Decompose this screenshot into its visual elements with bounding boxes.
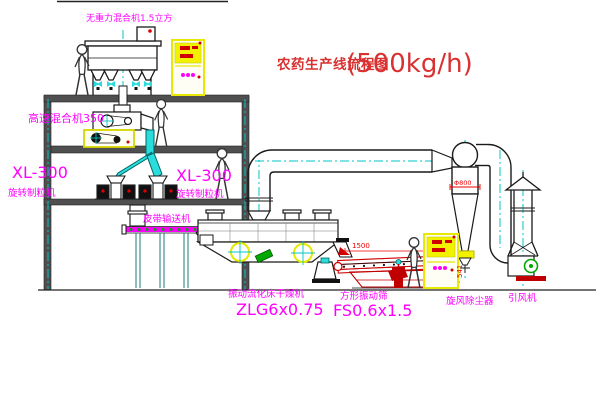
label-belt-conveyor: 皮带输送机 [143, 213, 191, 225]
label-dryer-name: 振动流化床干燥机 [228, 288, 305, 300]
person-figure [407, 238, 421, 288]
control-cabinet-ground [424, 234, 458, 288]
label-zero-gravity-mixer: 无重力混合机1.5立方 [86, 12, 172, 24]
label-granulator-right-model: XL-300 [176, 166, 232, 185]
label-granulator-right-name: 旋转制粒机 [176, 188, 224, 200]
cad-flow-diagram: 农药生产线流程图 (500kg/h) 无重力混合机1.5立方 高速混合机350 … [0, 0, 600, 403]
conveyor-rollers [130, 228, 197, 231]
person-figure [155, 100, 168, 147]
title-capacity: (500kg/h) [346, 49, 473, 79]
cyclone-outlet-pipe [475, 145, 511, 264]
exhaust-duct [245, 150, 452, 211]
label-granulator-left-name: 旋转制粒机 [8, 187, 56, 199]
dim-cyclone-diameter: Φ800 [454, 179, 472, 187]
diagram-canvas: 农药生产线流程图 (500kg/h) 无重力混合机1.5立方 高速混合机350 … [0, 0, 600, 403]
dim-sieve-height: 541 [456, 265, 464, 278]
dim-sieve-length: 1500 [352, 242, 370, 250]
granulator-left [95, 176, 137, 199]
label-dryer-model: ZLG6x0.75 [236, 300, 324, 319]
label-high-speed-mixer: 高速混合机350 [28, 111, 104, 125]
conveyor-posts [136, 233, 188, 288]
person-figure [75, 45, 89, 95]
label-fan: 引风机 [508, 292, 537, 304]
label-granulator-left-model: XL-300 [12, 163, 68, 182]
fluid-bed-dryer [198, 210, 340, 283]
label-sieve-model: FS0.6x1.5 [333, 301, 412, 320]
induced-draft-fan [508, 256, 546, 281]
control-cabinet-top [172, 40, 204, 95]
label-cyclone: 旋风除尘器 [446, 295, 494, 307]
granulator-right [137, 176, 179, 199]
